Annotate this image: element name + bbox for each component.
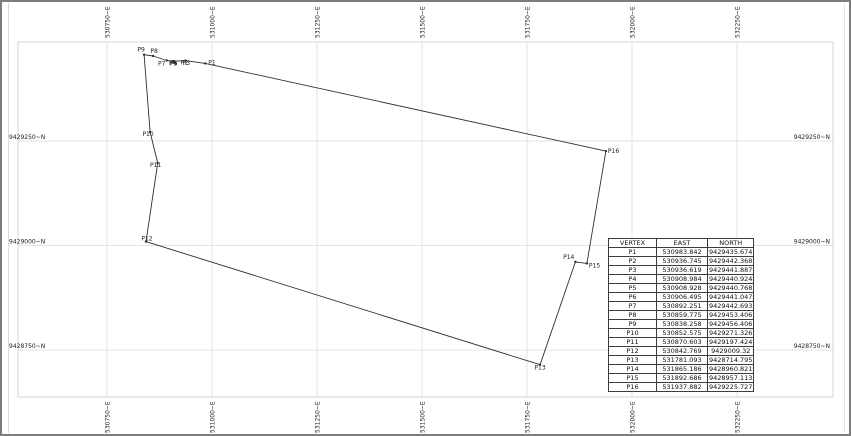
easting-label-top: 531250~E <box>315 6 322 38</box>
cell-vertex: P2 <box>609 257 657 266</box>
vertex-dot <box>143 54 145 56</box>
cell-east: 530908.928 <box>657 284 708 293</box>
vertex-label: P6 <box>170 60 178 67</box>
northing-label-left: 9428750~N <box>9 343 45 350</box>
table-row: P10530852.5759429271.326 <box>609 329 754 338</box>
cell-east: 530936.745 <box>657 257 708 266</box>
table-row: P14531865.1869428960.821 <box>609 365 754 374</box>
vertex-dot <box>204 62 206 64</box>
cell-east: 530852.575 <box>657 329 708 338</box>
cell-north: 9429453.406 <box>708 311 754 320</box>
cell-vertex: P9 <box>609 320 657 329</box>
cell-vertex: P14 <box>609 365 657 374</box>
cell-vertex: P6 <box>609 293 657 302</box>
cell-vertex: P12 <box>609 347 657 356</box>
cell-vertex: P10 <box>609 329 657 338</box>
cell-east: 530892.251 <box>657 302 708 311</box>
cell-east: 530859.775 <box>657 311 708 320</box>
vertex-label: P8 <box>150 48 158 55</box>
table-row: P16531937.8829429225.727 <box>609 383 754 392</box>
vertex-table-body: P1530983.8429429435.674P2530936.74594294… <box>609 248 754 392</box>
column-header-vertex: VERTEX <box>609 239 657 248</box>
vertex-dot <box>574 261 576 263</box>
cell-north: 9429442.368 <box>708 257 754 266</box>
cell-east: 530906.495 <box>657 293 708 302</box>
cell-east: 531865.186 <box>657 365 708 374</box>
easting-label-top: 532250~E <box>735 6 742 38</box>
vertex-label: P13 <box>534 365 545 372</box>
cell-north: 9429009.32 <box>708 347 754 356</box>
northing-label-left: 9429000~N <box>9 239 45 246</box>
easting-label-top: 531750~E <box>525 6 532 38</box>
table-row: P1530983.8429429435.674 <box>609 248 754 257</box>
cell-north: 9429435.674 <box>708 248 754 257</box>
vertex-label: P10 <box>142 131 153 138</box>
vertex-label: P1 <box>208 59 216 66</box>
table-row: P2530936.7459429442.368 <box>609 257 754 266</box>
easting-label-bottom: 531000~E <box>210 401 217 433</box>
vertex-table: VERTEXEASTNORTH P1530983.8429429435.674P… <box>608 238 754 392</box>
cell-north: 9429271.326 <box>708 329 754 338</box>
vertex-dot <box>605 150 607 152</box>
vertex-dot <box>586 262 588 264</box>
easting-label-bottom: 530750~E <box>105 401 112 433</box>
table-row: P9530838.2589429456.406 <box>609 320 754 329</box>
vertex-label: P3 <box>183 60 191 67</box>
table-row: P3530936.6199429441.887 <box>609 266 754 275</box>
cell-north: 9429440.924 <box>708 275 754 284</box>
easting-label-bottom: 532000~E <box>630 401 637 433</box>
cell-vertex: P3 <box>609 266 657 275</box>
survey-drawing-page: { "colors": { "border": "#7d7d7d", "fram… <box>0 0 851 436</box>
easting-label-bottom: 531750~E <box>525 401 532 433</box>
cell-east: 530983.842 <box>657 248 708 257</box>
cell-vertex: P1 <box>609 248 657 257</box>
table-row: P7530892.2519429442.693 <box>609 302 754 311</box>
cell-north: 9428957.113 <box>708 374 754 383</box>
cell-east: 531781.093 <box>657 356 708 365</box>
cell-north: 9429441.887 <box>708 266 754 275</box>
cell-east: 530842.769 <box>657 347 708 356</box>
cell-east: 530908.984 <box>657 275 708 284</box>
cell-east: 531892.686 <box>657 374 708 383</box>
column-header-east: EAST <box>657 239 708 248</box>
easting-label-top: 532000~E <box>630 6 637 38</box>
easting-label-top: 531000~E <box>210 6 217 38</box>
easting-label-bottom: 531250~E <box>315 401 322 433</box>
table-row: P15531892.6869428957.113 <box>609 374 754 383</box>
cell-east: 530936.619 <box>657 266 708 275</box>
vertex-dot <box>152 55 154 57</box>
cell-vertex: P8 <box>609 311 657 320</box>
cell-east: 530838.258 <box>657 320 708 329</box>
vertex-label: P14 <box>563 254 574 261</box>
cell-vertex: P11 <box>609 338 657 347</box>
vertex-label: P9 <box>137 47 145 54</box>
table-row: P12530842.7699429009.32 <box>609 347 754 356</box>
northing-label-right: 9428750~N <box>794 343 830 350</box>
cell-north: 9429442.693 <box>708 302 754 311</box>
northing-label-right: 9429250~N <box>794 134 830 141</box>
vertex-dot <box>166 59 168 61</box>
vertex-label: P16 <box>608 148 619 155</box>
easting-label-top: 530750~E <box>105 6 112 38</box>
table-row: P8530859.7759429453.406 <box>609 311 754 320</box>
cell-north: 9429197.424 <box>708 338 754 347</box>
northing-label-left: 9429250~N <box>9 134 45 141</box>
vertex-label: P7 <box>158 60 166 67</box>
parcel-polygon <box>144 55 606 365</box>
vertex-label: P15 <box>589 262 600 269</box>
cell-north: 9428960.821 <box>708 365 754 374</box>
table-row: P11530870.6039429197.424 <box>609 338 754 347</box>
cell-north: 9429440.768 <box>708 284 754 293</box>
cell-east: 531937.882 <box>657 383 708 392</box>
table-row: P13531781.0939428714.795 <box>609 356 754 365</box>
vertex-label: P12 <box>141 236 152 243</box>
vertex-table-header: VERTEXEASTNORTH <box>609 239 754 248</box>
cell-vertex: P4 <box>609 275 657 284</box>
cell-north: 9428714.795 <box>708 356 754 365</box>
cell-north: 9429456.406 <box>708 320 754 329</box>
cell-vertex: P7 <box>609 302 657 311</box>
cell-vertex: P13 <box>609 356 657 365</box>
easting-label-top: 531500~E <box>420 6 427 38</box>
table-row: P5530908.9289429440.768 <box>609 284 754 293</box>
cell-north: 9429225.727 <box>708 383 754 392</box>
column-header-north: NORTH <box>708 239 754 248</box>
cell-vertex: P15 <box>609 374 657 383</box>
vertex-label: P11 <box>150 162 161 169</box>
cell-vertex: P5 <box>609 284 657 293</box>
cell-vertex: P16 <box>609 383 657 392</box>
table-row: P6530906.4959429441.047 <box>609 293 754 302</box>
cell-north: 9429441.047 <box>708 293 754 302</box>
cell-east: 530870.603 <box>657 338 708 347</box>
table-row: P4530908.9849429440.924 <box>609 275 754 284</box>
easting-label-bottom: 531500~E <box>420 401 427 433</box>
northing-label-right: 9429000~N <box>794 239 830 246</box>
easting-label-bottom: 532250~E <box>735 401 742 433</box>
